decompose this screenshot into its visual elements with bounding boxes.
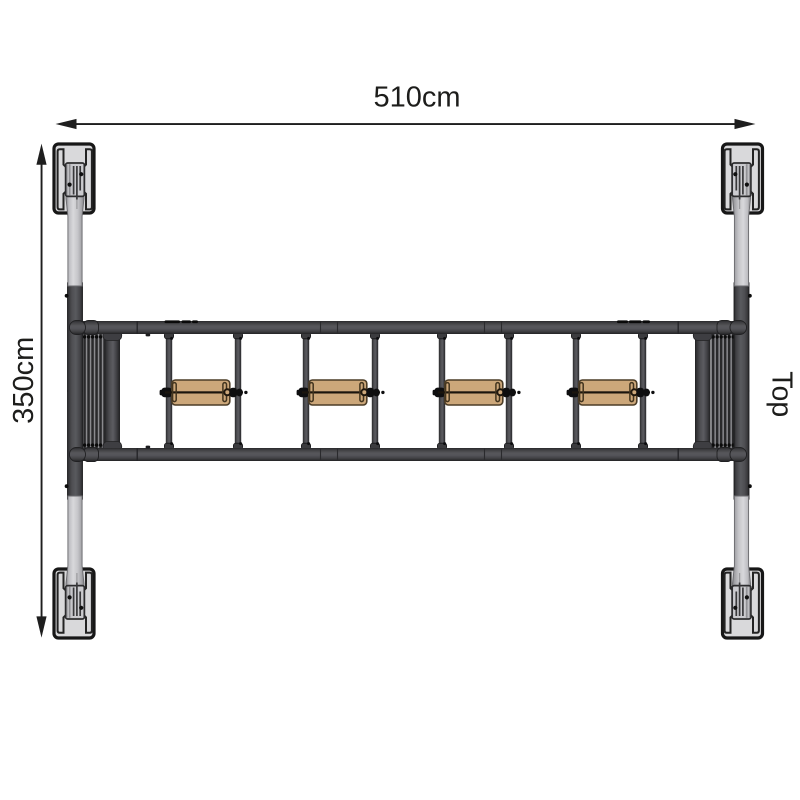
svg-text:350cm: 350cm: [8, 337, 40, 424]
svg-text:510cm: 510cm: [373, 82, 460, 114]
svg-text:Top: Top: [765, 371, 797, 417]
